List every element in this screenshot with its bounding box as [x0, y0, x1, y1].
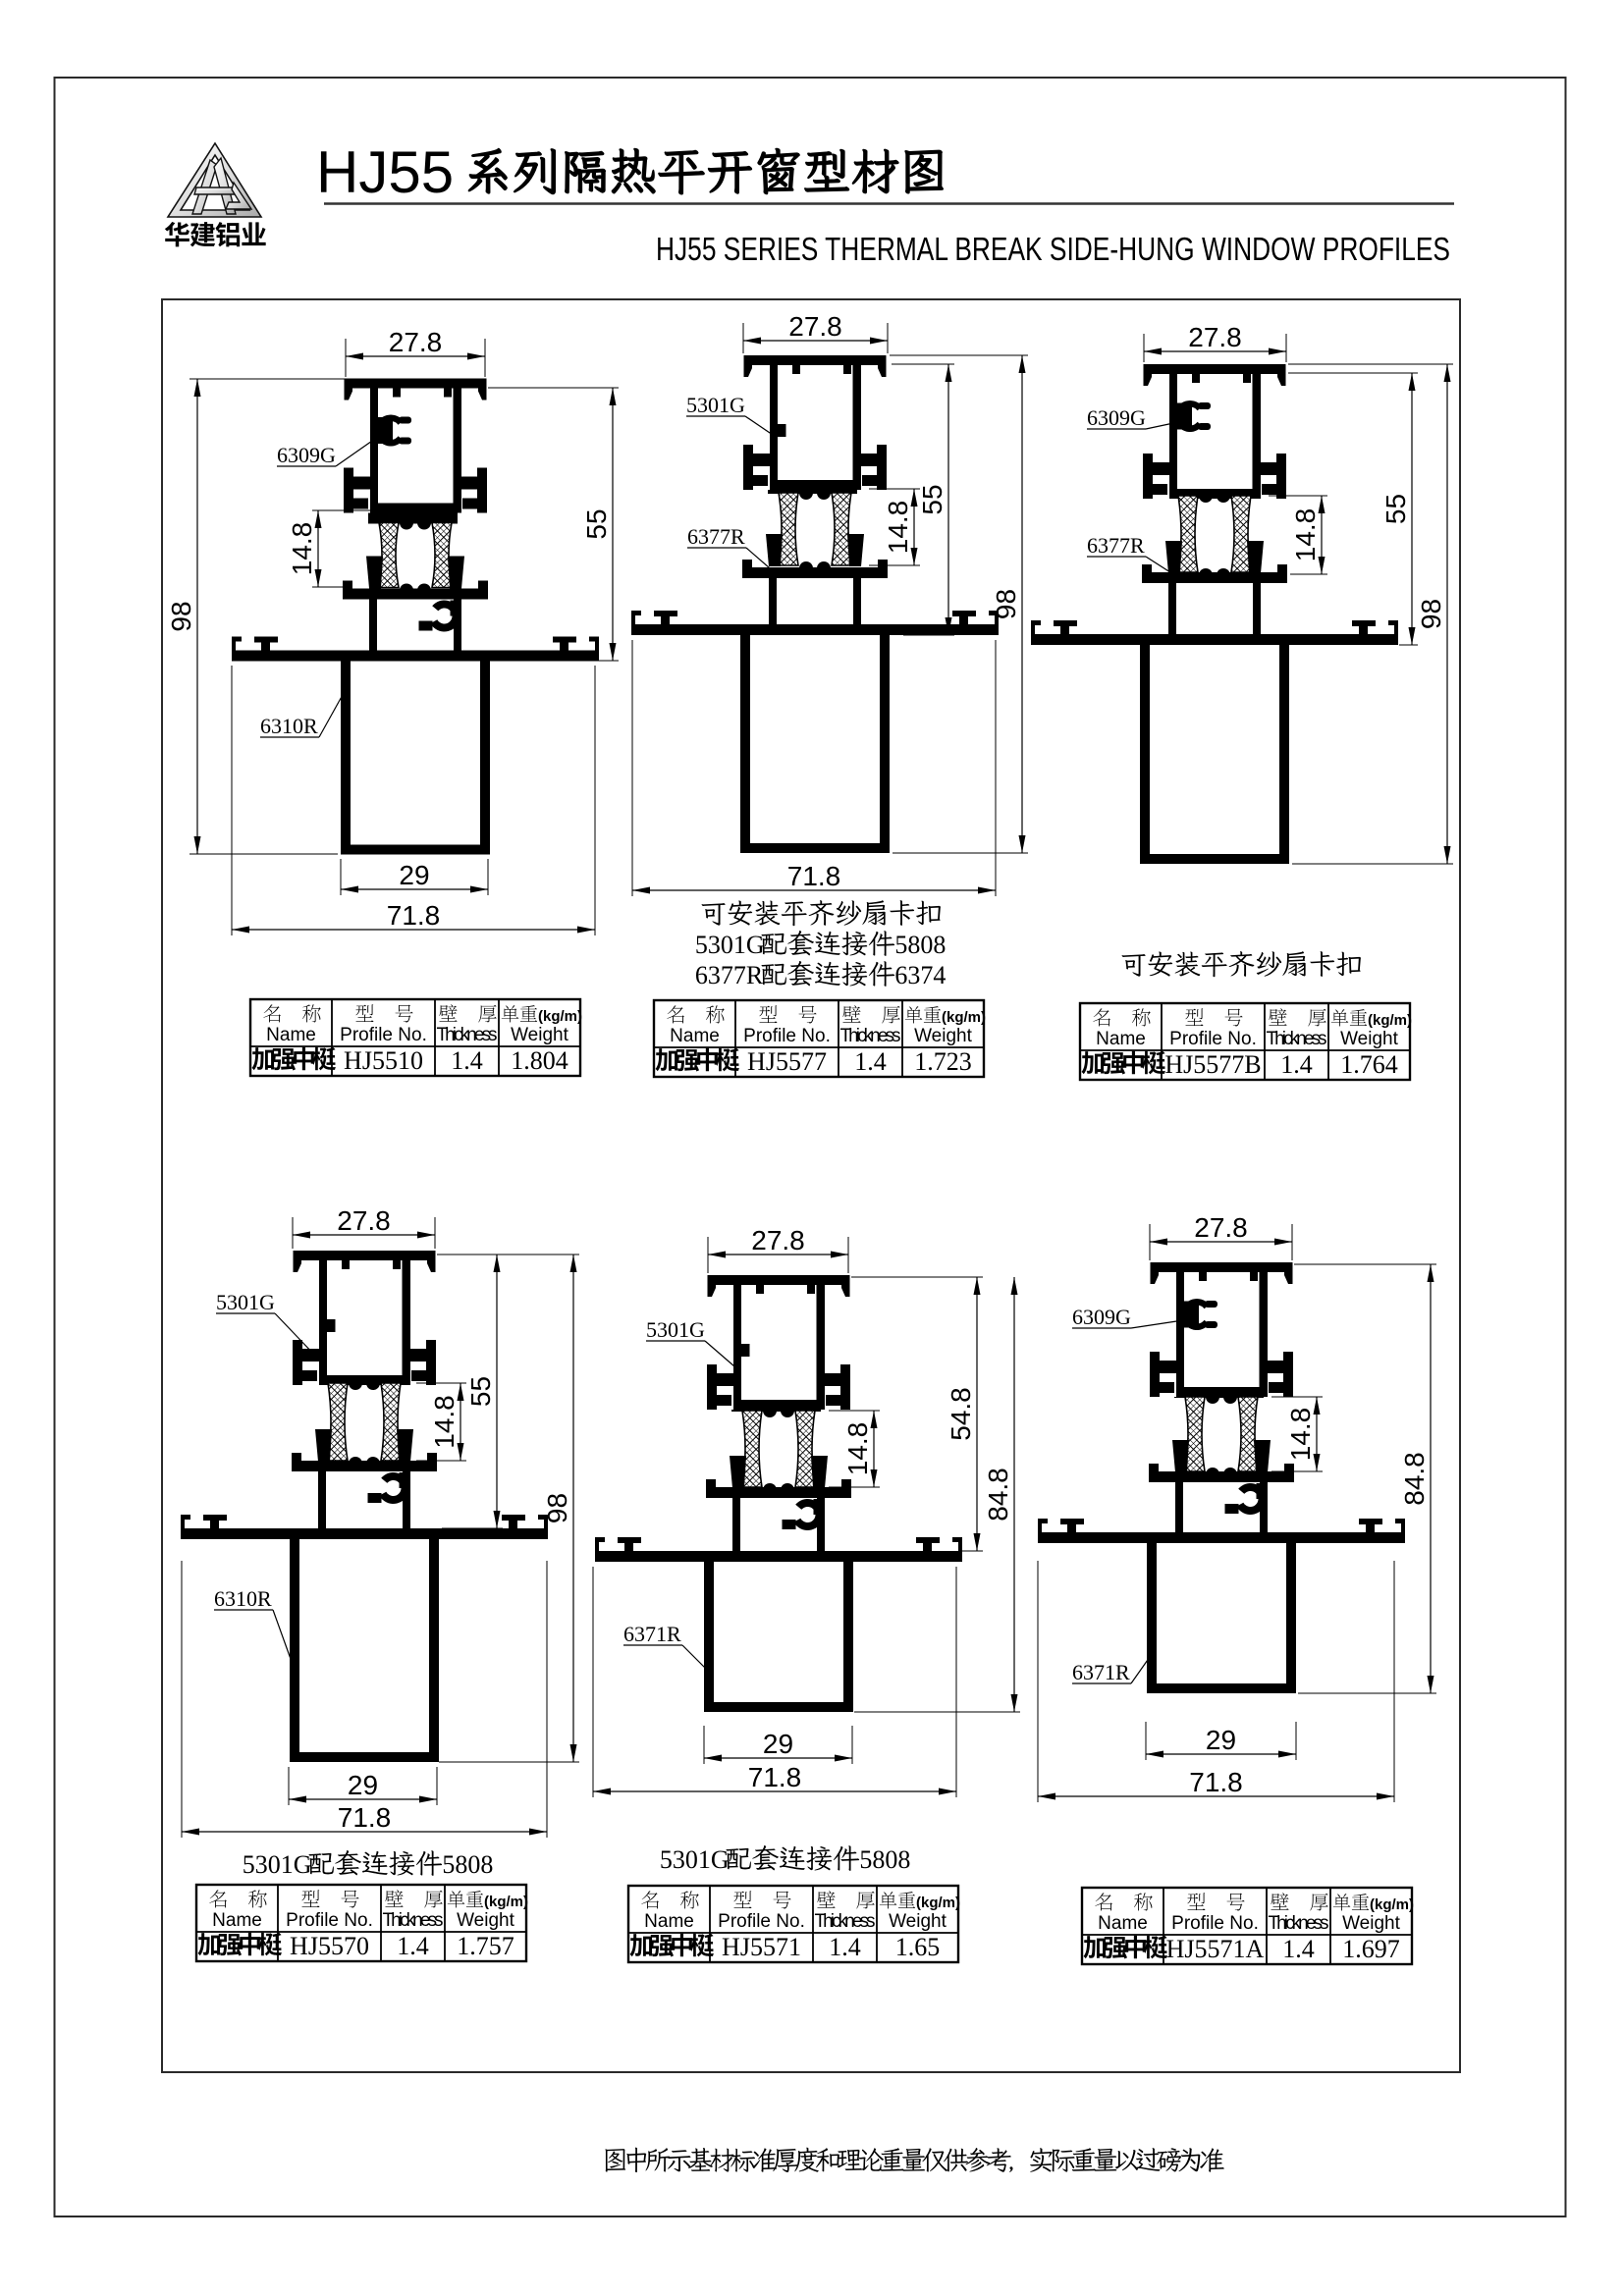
svg-text:Name: Name	[212, 1910, 262, 1931]
svg-text:Name: Name	[644, 1911, 694, 1932]
svg-text:1.4: 1.4	[1280, 1050, 1313, 1079]
svg-text:98: 98	[991, 589, 1021, 619]
svg-text:71.8: 71.8	[387, 900, 441, 931]
svg-text:Name: Name	[670, 1026, 720, 1046]
svg-text:5808: 5808	[894, 931, 946, 959]
svg-text:Name: Name	[1098, 1913, 1148, 1934]
svg-text:29: 29	[348, 1770, 378, 1800]
svg-text:HJ55 SERIES THERMAL BREAK SI: HJ55 SERIES THERMAL BREAK SIDE-HUNG WIND…	[656, 231, 1450, 267]
svg-text:6374: 6374	[894, 961, 946, 989]
svg-text:14.8: 14.8	[842, 1422, 873, 1476]
svg-text:5301G: 5301G	[695, 931, 765, 959]
svg-text:98: 98	[1416, 599, 1446, 629]
svg-text:5301G: 5301G	[660, 1845, 730, 1874]
svg-text:1.723: 1.723	[914, 1047, 972, 1076]
svg-text:27.8: 27.8	[1188, 322, 1242, 352]
svg-text:84.8: 84.8	[983, 1468, 1013, 1522]
svg-text:71.8: 71.8	[787, 861, 841, 891]
svg-text:71.8: 71.8	[748, 1762, 802, 1792]
svg-text:6377R: 6377R	[687, 524, 745, 549]
svg-text:1.4: 1.4	[854, 1047, 887, 1076]
svg-text:5808: 5808	[442, 1850, 493, 1879]
svg-text:29: 29	[1206, 1725, 1236, 1755]
svg-text:5301G: 5301G	[243, 1850, 312, 1879]
svg-text:Weight: Weight	[889, 1911, 947, 1932]
svg-text:(kg/m): (kg/m)	[1368, 1012, 1412, 1029]
svg-text:14.8: 14.8	[883, 501, 913, 555]
svg-text:Thickness: Thickness	[840, 1026, 901, 1046]
svg-text:98: 98	[166, 601, 196, 631]
svg-text:6309G: 6309G	[1087, 405, 1146, 430]
svg-text:71.8: 71.8	[338, 1802, 392, 1833]
svg-text:HJ5570: HJ5570	[290, 1932, 369, 1960]
svg-text:6310R: 6310R	[260, 714, 318, 738]
svg-text:Profile No.: Profile No.	[743, 1026, 831, 1046]
svg-text:Weight: Weight	[457, 1910, 515, 1931]
svg-text:6310R: 6310R	[214, 1586, 272, 1611]
svg-text:HJ55: HJ55	[316, 139, 454, 205]
svg-text:14.8: 14.8	[1290, 508, 1321, 562]
svg-text:Profile No.: Profile No.	[718, 1911, 805, 1932]
svg-text:55: 55	[1380, 494, 1411, 524]
svg-text:HJ5571: HJ5571	[722, 1933, 801, 1961]
svg-text:1.764: 1.764	[1340, 1050, 1398, 1079]
svg-text:Thickness: Thickness	[1269, 1913, 1329, 1934]
svg-text:84.8: 84.8	[1399, 1452, 1430, 1506]
svg-text:6377R: 6377R	[1087, 533, 1145, 558]
svg-text:Profile No.: Profile No.	[1171, 1913, 1259, 1934]
svg-text:5301G: 5301G	[646, 1317, 705, 1342]
svg-text:Thickness: Thickness	[437, 1025, 498, 1045]
svg-text:Profile No.: Profile No.	[286, 1910, 373, 1931]
svg-text:(kg/m): (kg/m)	[1370, 1896, 1414, 1913]
svg-text:1.804: 1.804	[511, 1046, 568, 1075]
svg-text:HJ5577: HJ5577	[747, 1047, 827, 1076]
svg-text:6377R: 6377R	[695, 961, 764, 989]
svg-text:Weight: Weight	[914, 1026, 973, 1046]
svg-text:(kg/m): (kg/m)	[538, 1008, 582, 1025]
svg-text:98: 98	[542, 1493, 572, 1523]
svg-text:Weight: Weight	[1342, 1913, 1401, 1934]
svg-text:27.8: 27.8	[788, 311, 842, 342]
svg-text:27.8: 27.8	[751, 1225, 805, 1255]
svg-text:6309G: 6309G	[277, 443, 336, 467]
svg-text:Thickness: Thickness	[1267, 1029, 1327, 1049]
svg-text:14.8: 14.8	[429, 1395, 460, 1449]
svg-text:HJ5571A: HJ5571A	[1166, 1935, 1265, 1963]
svg-text:6309G: 6309G	[1072, 1305, 1131, 1329]
svg-text:27.8: 27.8	[1194, 1212, 1248, 1243]
svg-text:Profile No.: Profile No.	[1169, 1029, 1257, 1049]
svg-text:1.65: 1.65	[895, 1933, 941, 1961]
svg-text:1.4: 1.4	[397, 1932, 429, 1960]
svg-text:Weight: Weight	[1340, 1029, 1399, 1049]
svg-text:(kg/m): (kg/m)	[484, 1894, 528, 1910]
svg-text:1.4: 1.4	[451, 1046, 483, 1075]
svg-text:(kg/m): (kg/m)	[916, 1895, 960, 1911]
svg-text:1.4: 1.4	[829, 1933, 861, 1961]
svg-text:Name: Name	[266, 1025, 316, 1045]
svg-text:Profile No.: Profile No.	[340, 1025, 427, 1045]
svg-text:1.757: 1.757	[457, 1932, 514, 1960]
svg-text:27.8: 27.8	[337, 1205, 391, 1236]
svg-text:HJ5577B: HJ5577B	[1164, 1050, 1261, 1079]
svg-text:Weight: Weight	[511, 1025, 569, 1045]
svg-text:71.8: 71.8	[1189, 1767, 1243, 1797]
svg-text:54.8: 54.8	[946, 1387, 976, 1441]
svg-text:Thickness: Thickness	[383, 1910, 444, 1931]
svg-text:6371R: 6371R	[623, 1622, 681, 1646]
svg-text:6371R: 6371R	[1072, 1660, 1130, 1684]
svg-text:(kg/m): (kg/m)	[942, 1009, 986, 1026]
svg-text:Name: Name	[1096, 1029, 1146, 1049]
svg-text:5301G: 5301G	[216, 1290, 275, 1314]
svg-text:1.4: 1.4	[1282, 1935, 1315, 1963]
svg-text:14.8: 14.8	[1285, 1408, 1316, 1462]
svg-text:55: 55	[465, 1376, 496, 1407]
svg-text:55: 55	[917, 484, 947, 514]
svg-text:14.8: 14.8	[287, 522, 317, 576]
svg-text:Thickness: Thickness	[815, 1911, 876, 1932]
svg-text:5301G: 5301G	[686, 393, 745, 417]
svg-text:29: 29	[399, 860, 429, 890]
svg-text:5808: 5808	[859, 1845, 910, 1874]
svg-text:1.697: 1.697	[1342, 1935, 1400, 1963]
svg-text:29: 29	[763, 1729, 793, 1759]
svg-text:27.8: 27.8	[389, 327, 443, 357]
svg-text:HJ5510: HJ5510	[344, 1046, 423, 1075]
svg-text:55: 55	[581, 508, 612, 539]
